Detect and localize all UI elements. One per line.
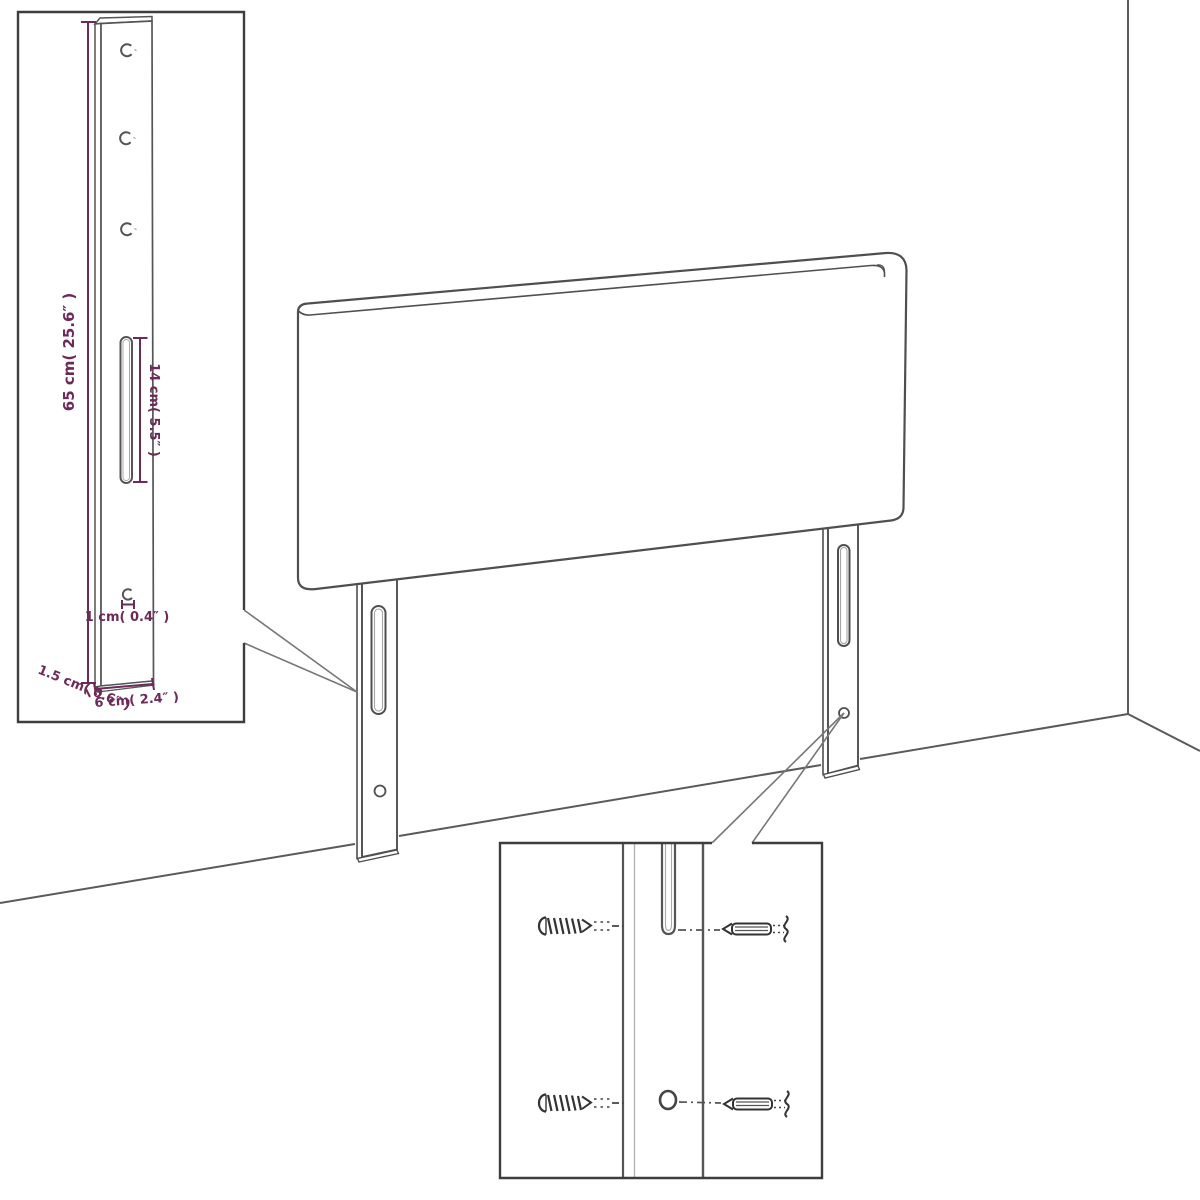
mounting-detail-callout [712, 713, 844, 843]
floor-line-near-corner-segment [860, 714, 1128, 759]
headboard-right-leg [823, 505, 860, 778]
left-leg-hole [375, 786, 386, 797]
floor-line-left-segment [0, 844, 355, 903]
hole-dimension-label: 1 cm( 0.4″ ) [85, 610, 170, 625]
mounting-detail-callout-line-left [712, 713, 844, 843]
assembly-diagram: 65 cm( 25.6″ ) 14 cm( 5.5″ ) 1 cm( 0.4″ … [0, 0, 1200, 1200]
floor-line-mid-segment [399, 765, 821, 836]
floor-line-right-segment [1128, 714, 1200, 751]
leg-detail-inset: 65 cm( 25.6″ ) 14 cm( 5.5″ ) 1 cm( 0.4″ … [18, 12, 244, 722]
headboard-panel-outline [298, 253, 907, 589]
leg-detail-drawing [95, 17, 154, 693]
left-leg-slot [372, 606, 386, 714]
right-leg-slot [838, 545, 850, 646]
slot-dimension-label: 14 cm( 5.5″ ) [146, 363, 161, 457]
inset-leg-slot [121, 337, 133, 483]
headboard-panel [298, 253, 907, 589]
inset-leg-side-face [95, 24, 101, 688]
height-dimension-label: 65 cm( 25.6″ ) [60, 293, 78, 411]
leg-detail-callout [244, 610, 357, 692]
mounting-detail-inset [500, 843, 822, 1178]
mounting-detail-callout-line-right [752, 713, 844, 843]
headboard-left-leg [357, 555, 399, 862]
